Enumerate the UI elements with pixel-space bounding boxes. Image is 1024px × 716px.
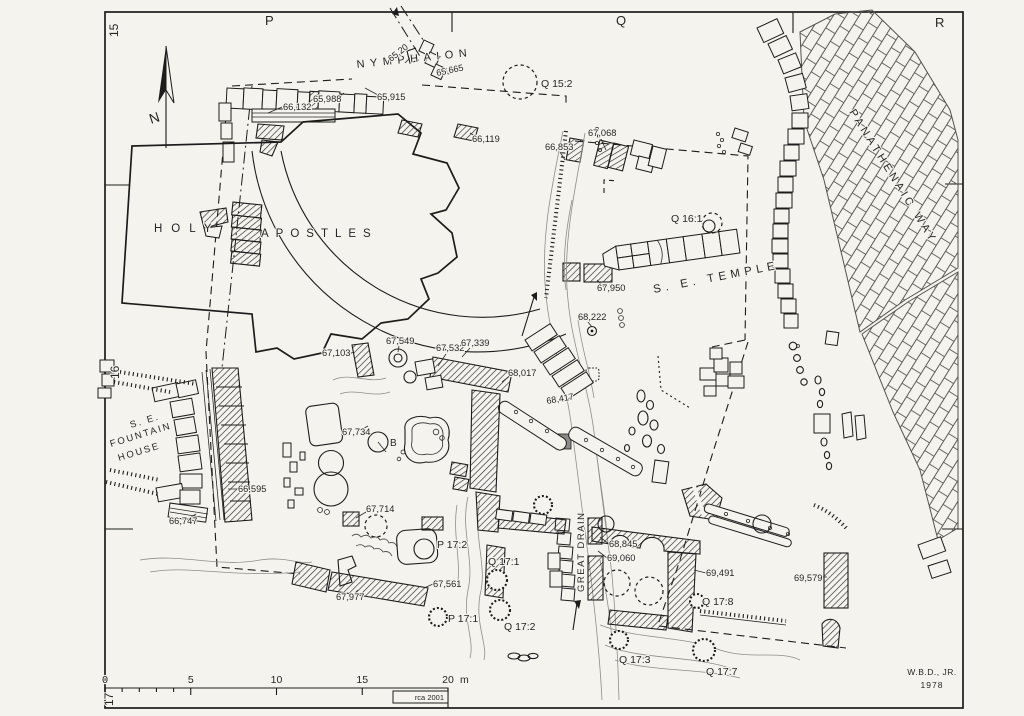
scale-tick-label: 20: [442, 674, 454, 686]
site-plan-page: PQR151617NYMPHAIONHOLYAPOSTLESS. E. TEMP…: [0, 0, 1024, 716]
elevation-label: 67,714: [366, 504, 394, 514]
elevation-label: 66,853: [545, 142, 573, 152]
elevation-label: 67,549: [386, 336, 414, 346]
elevation-label: 68,845: [609, 539, 637, 549]
elevation-label: 68,222: [578, 312, 606, 322]
point-label: Q 17:3: [619, 654, 651, 666]
point-label: Q 17:7: [706, 666, 738, 678]
elevation-label: 67,068: [588, 128, 616, 138]
elevation-label: 67,950: [597, 283, 625, 293]
grid-label: P: [265, 13, 275, 28]
elevation-label: 69,579: [794, 573, 822, 583]
elevation-label: 68,017: [508, 368, 536, 378]
point-label: Q 16:1: [671, 213, 703, 225]
area-label: B: [390, 438, 397, 449]
well-q17-2: [490, 600, 510, 620]
elevation-label: 65,988: [313, 94, 341, 104]
elevation-label: 66,132: [283, 102, 311, 112]
point-label: P 17:1: [448, 613, 478, 625]
year-label: 1978: [921, 680, 944, 690]
grid-label: Q: [616, 13, 627, 28]
area-label: HOLY: [154, 223, 220, 235]
elevation-label: 67,734: [342, 427, 370, 437]
site-plan-svg: PQR151617NYMPHAIONHOLYAPOSTLESS. E. TEMP…: [0, 0, 1024, 716]
area-label: APOSTLES: [261, 228, 378, 240]
well-upper: [534, 496, 552, 514]
elevation-label: 67,339: [461, 338, 489, 348]
elevation-label: 66,747: [169, 516, 197, 526]
scale-tick-label: 10: [271, 674, 283, 686]
scale-tick-label: 0: [102, 674, 108, 686]
elevation-label: 65,915: [377, 92, 405, 102]
point-label: Q 17:1: [488, 556, 520, 568]
elevation-label: 67,977: [336, 592, 364, 602]
elevation-label: 69,060: [607, 553, 635, 563]
grid-label: 17: [102, 692, 116, 706]
elevation-label: 66,595: [238, 484, 266, 494]
point-label: Q 17:2: [504, 621, 536, 633]
author-credit: W.B.D., JR.: [907, 667, 956, 677]
grid-label: 15: [107, 23, 121, 37]
drafter-credit: rca 2001: [415, 693, 444, 702]
elevation-label: 67,561: [433, 579, 461, 589]
elevation-label: 69,491: [706, 568, 734, 578]
grid-label: 16: [108, 365, 122, 379]
well-p17-1: [429, 608, 447, 626]
point-label: P 17:2: [437, 539, 467, 551]
scale-tick-label: 5: [188, 674, 194, 686]
grid-label: R: [935, 15, 945, 30]
point-label: Q 15:2: [541, 78, 573, 90]
scale-tick-label: 15: [356, 674, 368, 686]
area-label: GREAT DRAIN: [576, 511, 587, 592]
point-label: Q 17:8: [702, 596, 734, 608]
elevation-label: 67,103: [322, 348, 350, 358]
elevation-label: 66,119: [472, 134, 500, 144]
well-q17-1: [487, 570, 507, 590]
scale-unit-label: m: [460, 674, 469, 686]
